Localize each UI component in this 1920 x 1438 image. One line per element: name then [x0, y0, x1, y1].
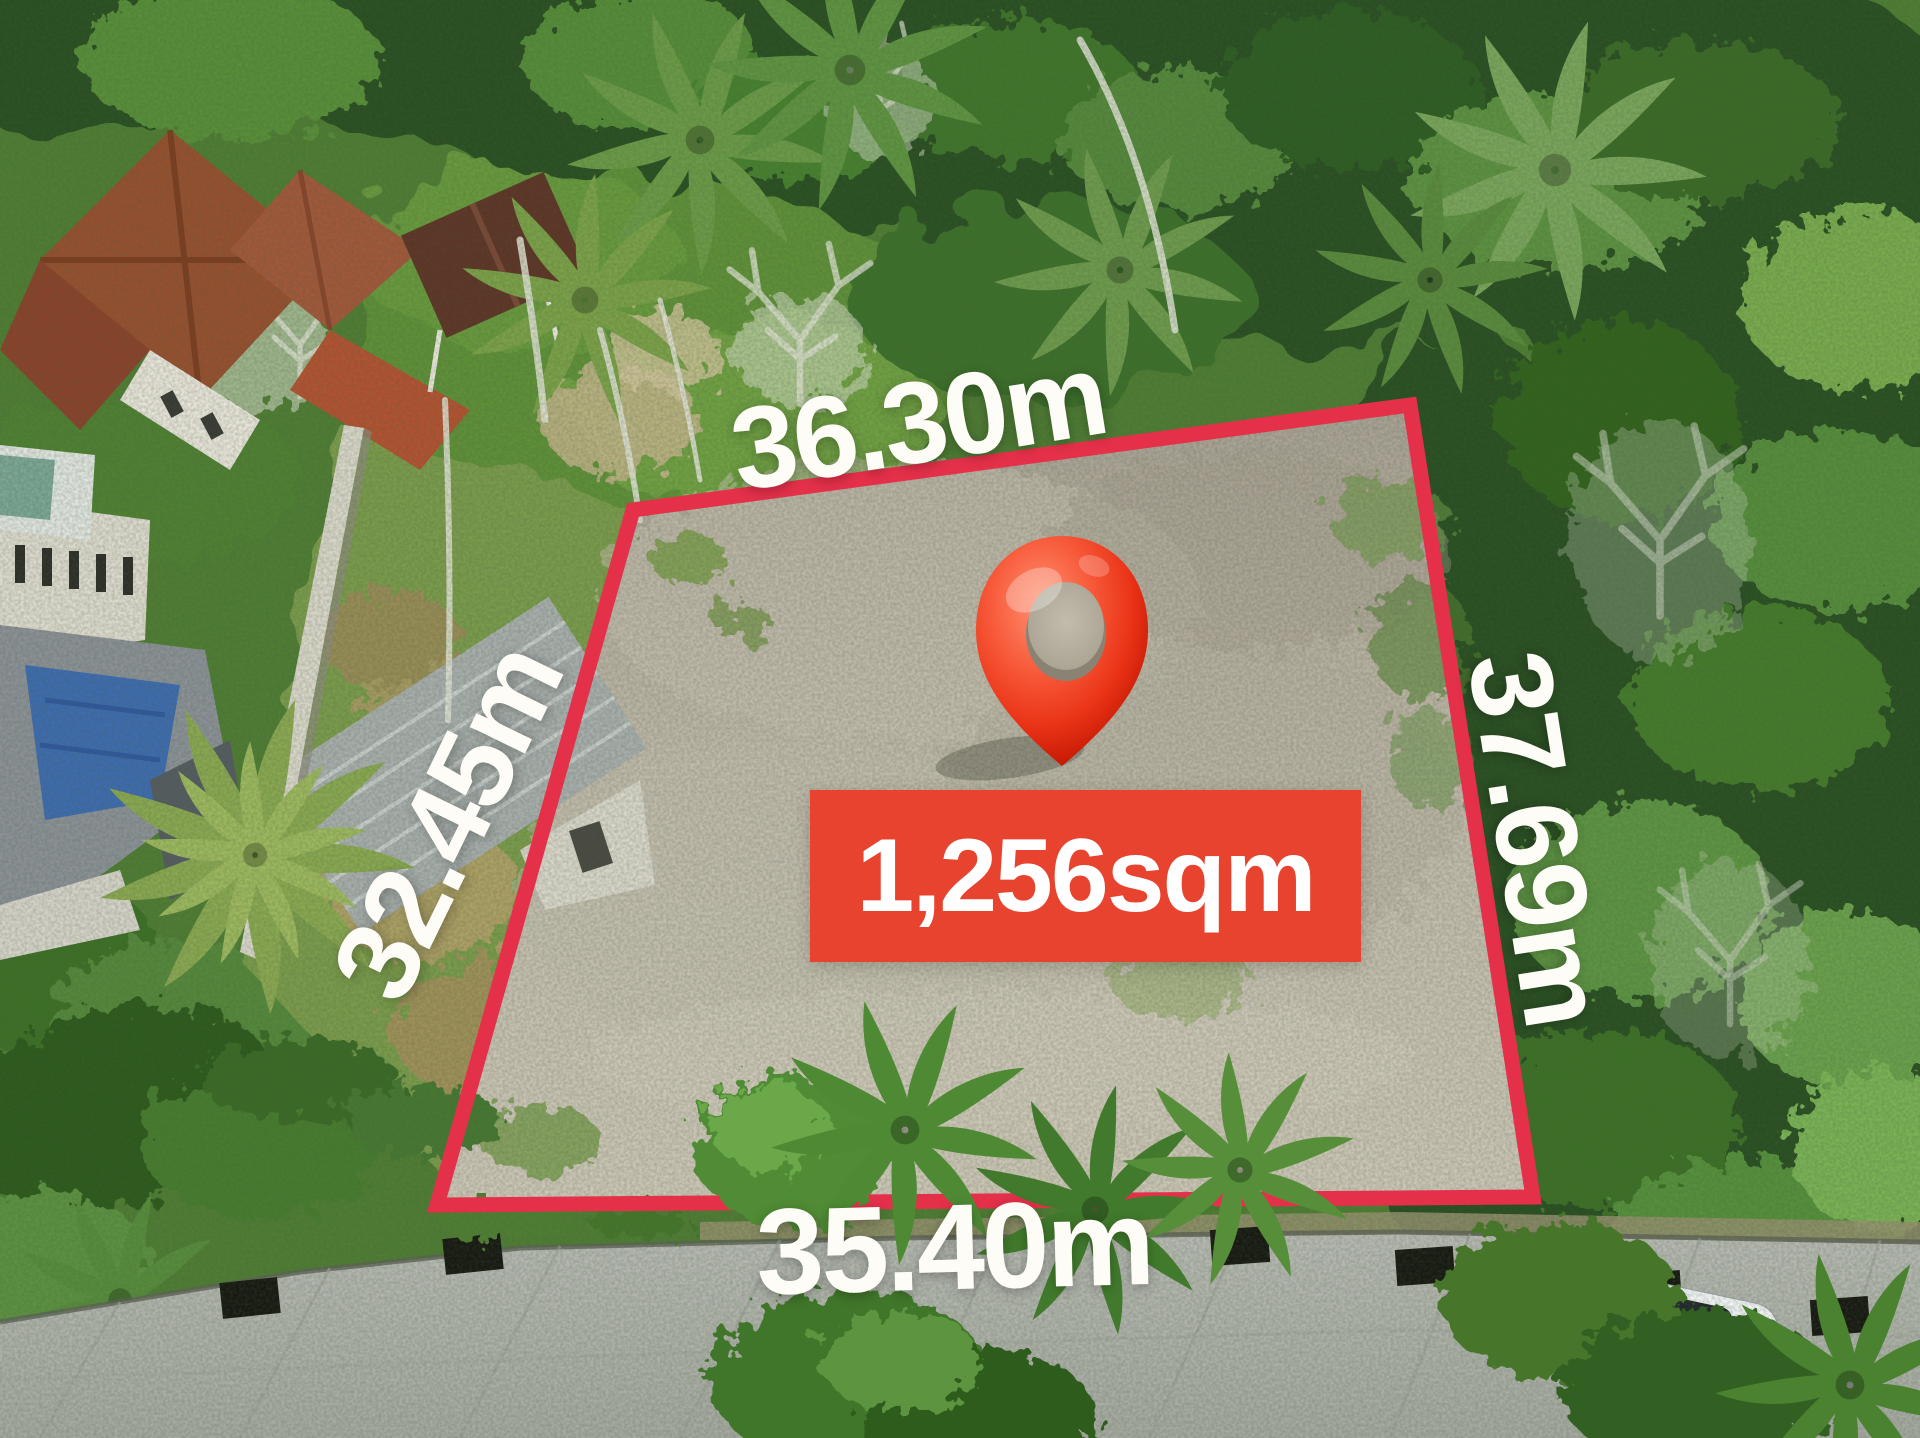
area-badge-label: 1,256sqm	[856, 824, 1314, 928]
measurement-bottom: 35.40m	[755, 1181, 1154, 1313]
aerial-land-plot-photo: 36.30m 37.69m 32.45m 35.40m 1,256sqm	[0, 0, 1920, 1438]
area-badge: 1,256sqm	[810, 790, 1361, 962]
